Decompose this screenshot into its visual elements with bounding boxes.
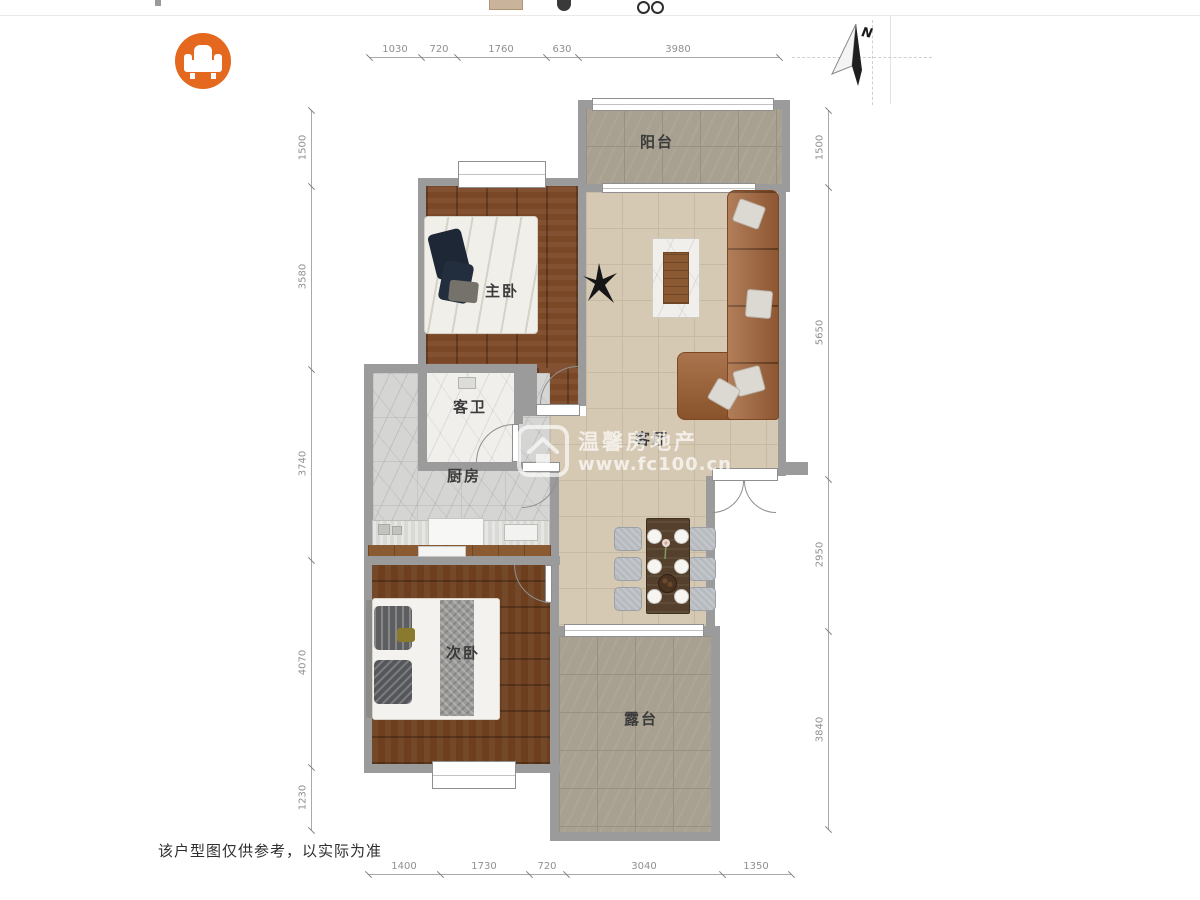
bed-accent-cushion	[397, 628, 415, 642]
toolbar-fragment-swatch	[489, 0, 523, 10]
dining-chair	[614, 587, 642, 611]
plate	[647, 589, 662, 604]
dining-chair	[688, 557, 716, 581]
dim-label: 1730	[454, 861, 514, 872]
room-label-master-bedroom: 主卧	[485, 280, 519, 301]
wall	[778, 462, 808, 475]
plate	[674, 529, 689, 544]
bathroom-fixture	[458, 377, 476, 389]
armchair-leg	[190, 73, 195, 79]
dim-line-bottom	[368, 874, 791, 875]
dim-label: 5650	[815, 313, 826, 353]
page-edge-line	[890, 16, 891, 104]
room-label-guest-bathroom: 客卫	[453, 396, 487, 417]
dim-line-left	[311, 110, 312, 830]
dining-chair	[688, 527, 716, 551]
dim-label: 3840	[815, 710, 826, 750]
terrace-floor	[559, 636, 712, 832]
dim-label: 1500	[298, 128, 309, 168]
dim-label: 2950	[815, 535, 826, 575]
entry-door-arc	[712, 481, 744, 513]
dim-label: 720	[517, 861, 577, 872]
toolbar-fragment-ring	[637, 1, 650, 14]
dim-label: 630	[532, 44, 592, 55]
wall	[550, 832, 720, 841]
watermark-title: 温馨房地产	[578, 426, 698, 456]
bag-on-bed	[448, 280, 479, 304]
dim-label: 3740	[298, 444, 309, 484]
watermark-url: www.fc100.cn	[578, 454, 732, 475]
window	[592, 98, 774, 111]
dim-label: 1230	[298, 778, 309, 818]
dining-chair	[688, 587, 716, 611]
plant-icon	[583, 261, 619, 309]
door-frame	[536, 404, 580, 416]
kitchen-sink	[504, 524, 538, 541]
entry-door-arc	[744, 481, 776, 513]
dim-line-top	[369, 57, 779, 58]
toolbar-fragment-glyph	[557, 0, 571, 11]
balcony-floor	[586, 108, 782, 185]
dim-label: 1760	[471, 44, 531, 55]
north-arrow: N	[818, 16, 888, 96]
dim-label: 3040	[614, 861, 674, 872]
dim-label: 3580	[298, 257, 309, 297]
coffee-table-top	[663, 252, 689, 304]
plate	[674, 559, 689, 574]
dim-label: 1350	[726, 861, 786, 872]
wall	[782, 100, 790, 192]
wall	[514, 364, 523, 424]
bed-pillow	[374, 660, 412, 704]
fruit-bowl	[658, 574, 677, 593]
armchair-logo-icon	[175, 33, 231, 89]
toolbar-fragment-ring	[651, 1, 664, 14]
armchair-seat	[187, 60, 219, 72]
dim-line-right	[828, 110, 829, 829]
top-divider	[0, 15, 1200, 16]
floorplan-page: N	[0, 0, 1200, 900]
flower-decor	[660, 538, 672, 560]
dim-label: 3980	[648, 44, 708, 55]
north-label: N	[860, 25, 873, 42]
armchair-leg	[211, 73, 216, 79]
room-label-kitchen: 厨房	[447, 465, 481, 486]
dim-label: 4070	[298, 643, 309, 683]
dim-label: 720	[409, 44, 469, 55]
wall	[418, 372, 427, 471]
counter-item	[378, 524, 390, 535]
wall	[523, 364, 537, 416]
wall	[364, 556, 560, 565]
counter-item	[392, 526, 402, 535]
window	[432, 761, 516, 789]
room-label-balcony: 阳台	[640, 131, 674, 152]
room-label-second-bedroom: 次卧	[446, 642, 480, 663]
room-label-terrace: 露台	[624, 708, 658, 729]
window	[564, 624, 704, 637]
plate	[647, 559, 662, 574]
plate	[674, 589, 689, 604]
counter-appliance-white	[418, 546, 466, 557]
dim-label: 1400	[374, 861, 434, 872]
window	[458, 161, 546, 188]
wall	[364, 364, 536, 373]
wall	[778, 184, 786, 476]
watermark: 温馨房地产 www.fc100.cn	[516, 424, 736, 482]
disclaimer-text: 该户型图仅供参考，以实际为准	[158, 840, 382, 861]
dining-chair	[614, 557, 642, 581]
watermark-house-icon	[516, 424, 570, 478]
wall	[550, 462, 559, 840]
dining-chair	[614, 527, 642, 551]
dim-label: 1500	[815, 128, 826, 168]
wall	[711, 626, 720, 841]
toolbar-fragment-icon	[155, 0, 161, 6]
sofa-pillow	[745, 289, 773, 319]
